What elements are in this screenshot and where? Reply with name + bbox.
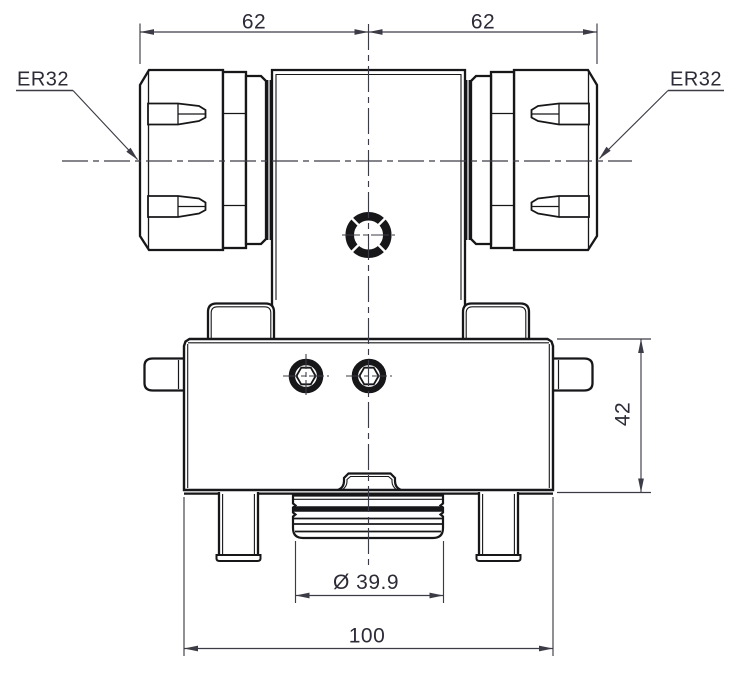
label-er32-left: ER32 [17,69,69,91]
left-leg [217,492,261,561]
dim-text-42: 42 [612,402,635,426]
left-side-pin [145,359,185,391]
technical-drawing-sheet: 62 62 ER32 ER32 42 Ø 39.9 [0,0,733,673]
callout-er32-right: ER32 [597,69,724,161]
dim-text-39-9: Ø 39.9 [333,571,399,594]
callout-er32-left: ER32 [16,69,140,162]
right-side-pin [553,359,593,391]
label-er32-right: ER32 [670,69,722,91]
dim-text-100: 100 [349,625,386,648]
right-leg [477,492,521,561]
dim-text-62-left: 62 [242,11,266,34]
dim-spigot-diameter: Ø 39.9 [296,541,444,603]
right-collet-chuck [466,70,597,250]
left-collet-chuck [140,70,271,250]
dim-text-62-right: 62 [471,11,495,34]
tool-holder-front-view: 62 62 ER32 ER32 42 Ø 39.9 [0,0,733,673]
